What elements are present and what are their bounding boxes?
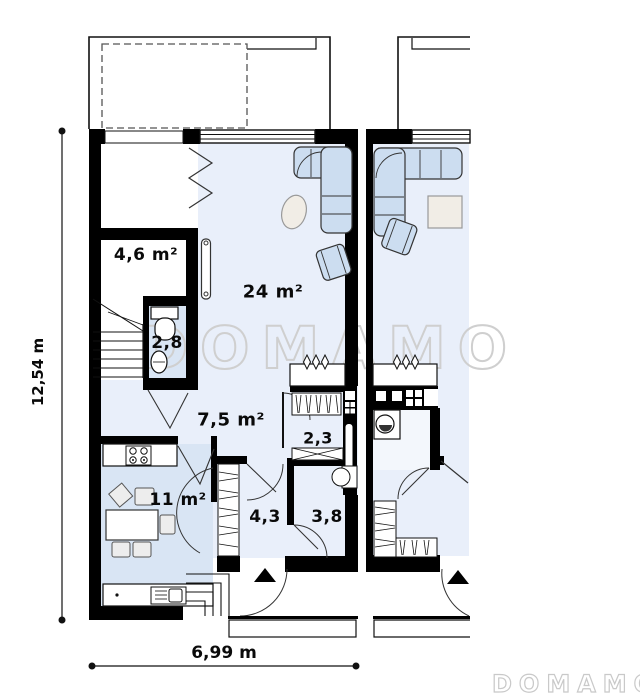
- dimension-height-label: 12,54 m: [29, 338, 47, 406]
- room-label-hall: 7,5 m²: [197, 410, 265, 431]
- room-label-bathroom: 3,8: [311, 507, 343, 527]
- room-label-living: 24 m²: [243, 282, 303, 303]
- floor-plan-canvas: DOMAMO: [0, 0, 640, 697]
- porch-steps: [186, 574, 470, 637]
- dimension-width-label: 6,99 m: [191, 643, 257, 663]
- radiator-symbol: [304, 355, 329, 369]
- floor-plan: DOMAMO: [0, 0, 640, 697]
- room-label-wardrobe: 2,3: [303, 429, 333, 448]
- brand-logo: DOMAMO: [492, 670, 640, 697]
- room-label-corridor: 4,3: [249, 507, 281, 527]
- windows: [105, 130, 470, 143]
- carport-outline: [89, 37, 470, 129]
- room-label-kitchen: 11 m²: [149, 490, 206, 510]
- room-label-toilet: 2,8: [151, 333, 183, 353]
- room-label-storage: 4,6 m²: [114, 245, 178, 265]
